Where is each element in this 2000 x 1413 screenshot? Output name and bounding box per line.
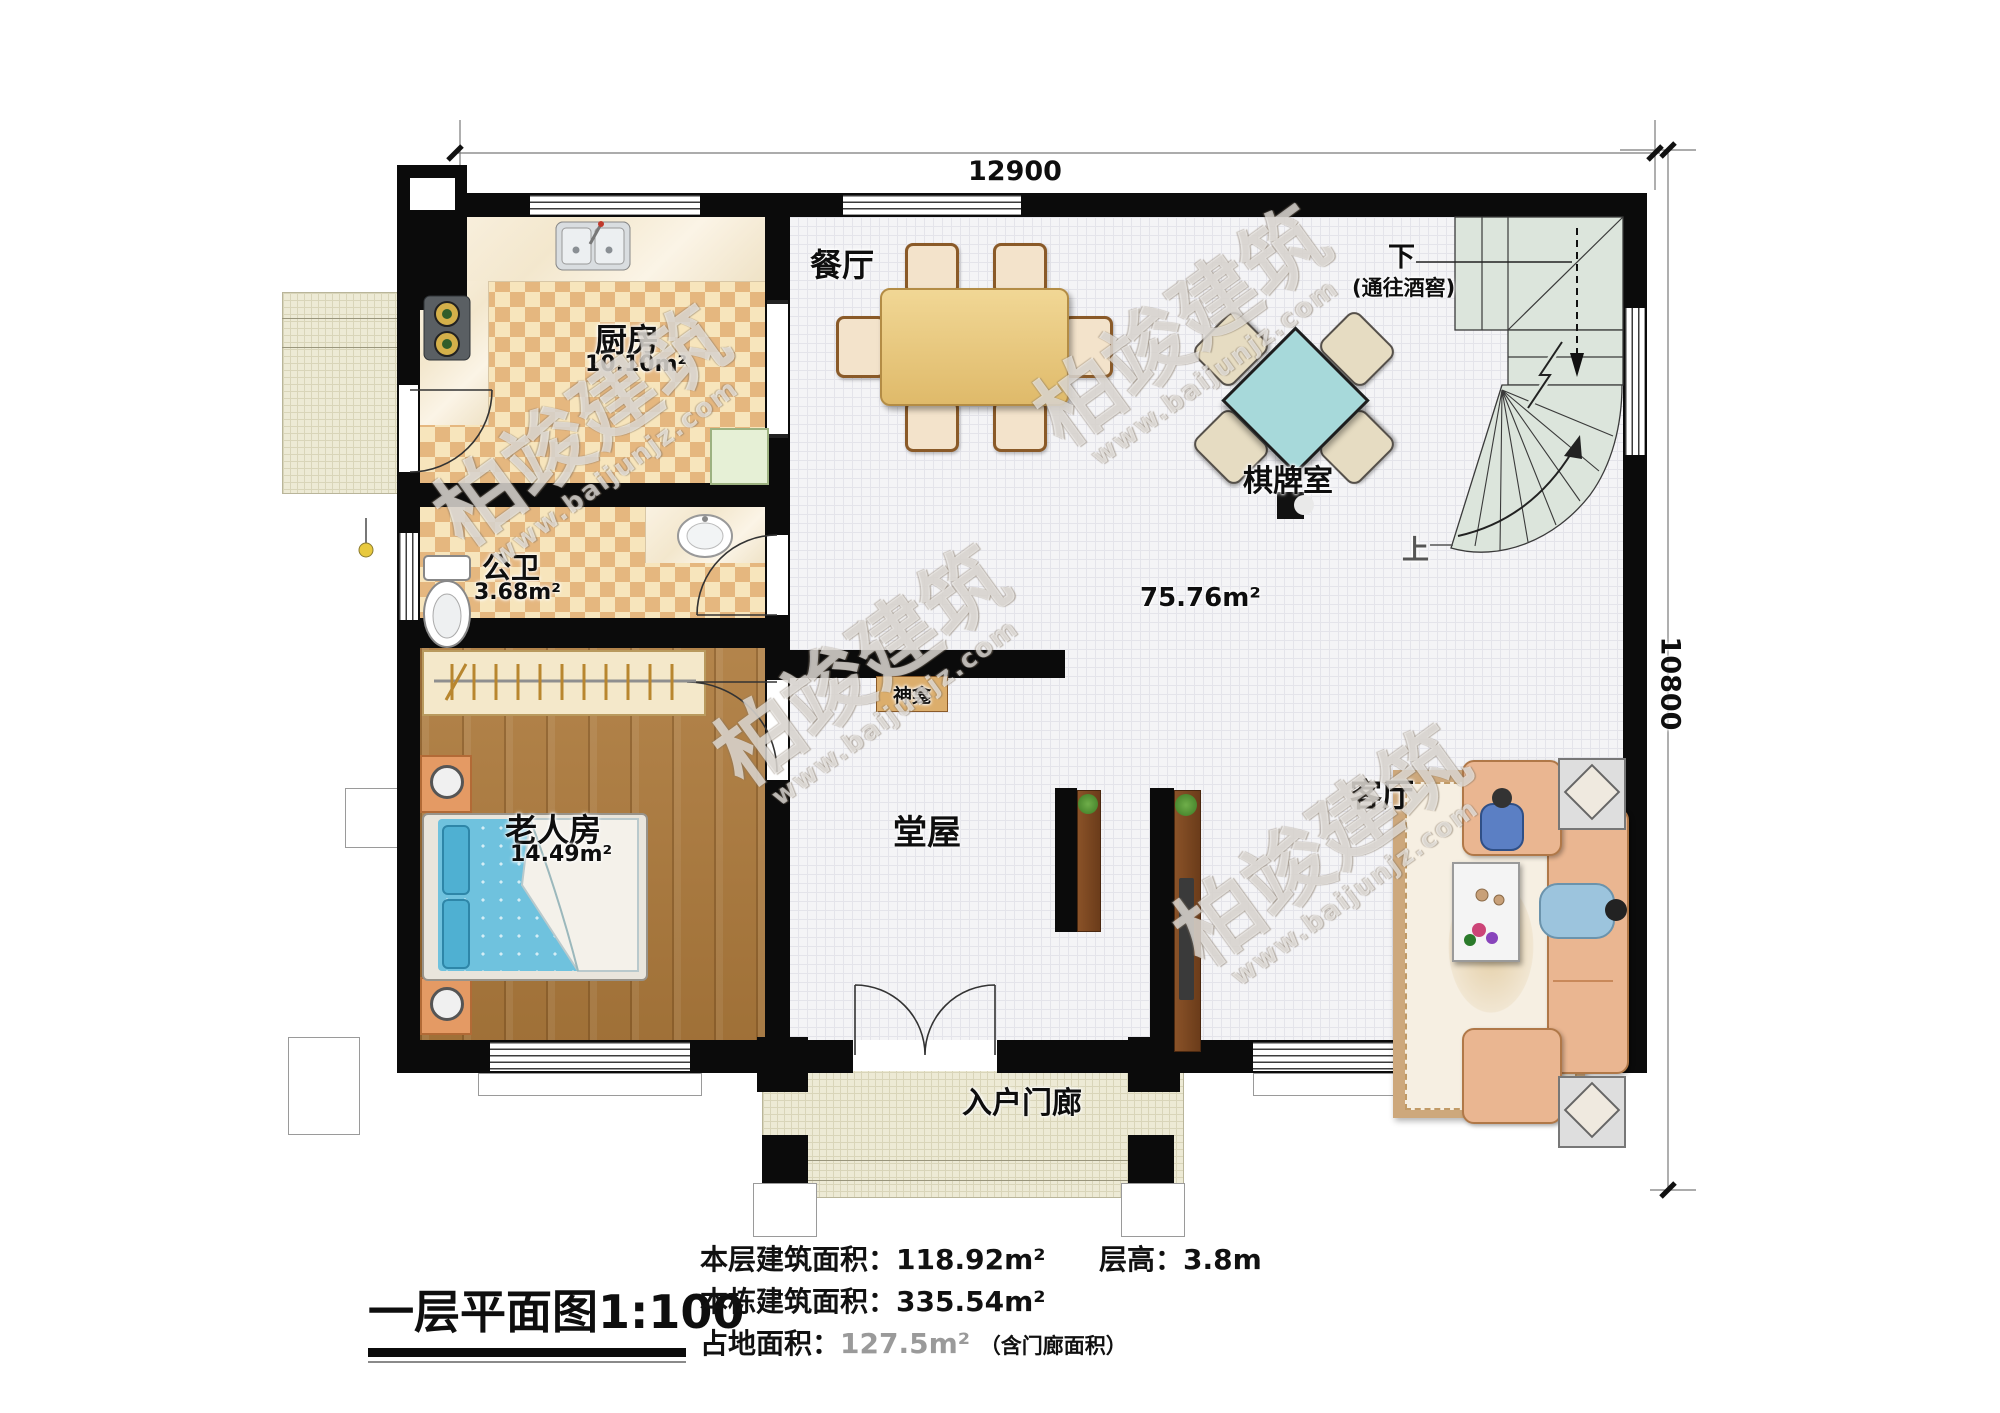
fridge: [710, 428, 769, 485]
dim-top-value: 12900: [968, 156, 1062, 187]
dining-chair-left: [836, 316, 886, 378]
porch-column-top-left: [757, 1037, 808, 1092]
corner-flue: [410, 178, 455, 210]
wall-shrine: [765, 650, 1065, 678]
room-label-porch: 入户门廊: [962, 1078, 1082, 1122]
room-label-living: 客厅: [1350, 770, 1414, 816]
sill-elder-window: [478, 1073, 702, 1096]
stair-down-label: 下: [1388, 235, 1415, 274]
wall-stub-cabinet: [1055, 788, 1077, 932]
armchair-top: [1462, 760, 1562, 856]
stats-area-label: 本层建筑面积：: [700, 1243, 896, 1276]
nightstand-lamp-top: [430, 765, 464, 799]
wall-hall-right: [1150, 788, 1174, 1040]
kitchen-door-opening: [767, 300, 788, 438]
tv-screen: [1179, 878, 1194, 1000]
entry-door-opening: [853, 1042, 997, 1071]
stats-total-value: 335.54m²: [896, 1285, 1046, 1318]
wall-bath-bottom: [397, 618, 765, 648]
room-label-hall: 堂屋: [893, 805, 961, 854]
dining-table: [880, 288, 1069, 406]
stats-land-note: （含门廊面积）: [980, 1334, 1127, 1358]
title-underline-thin: [368, 1361, 686, 1363]
stats-land-label: 占地面积：: [700, 1327, 840, 1360]
dining-chair-bottom-1: [905, 400, 959, 452]
dining-chair-right: [1063, 316, 1113, 378]
plan-title: 一层平面图: [368, 1285, 598, 1339]
bath-lamp: [359, 518, 373, 557]
room-area-elder: 14.49m²: [510, 842, 612, 867]
porch-column-top-right: [1128, 1037, 1180, 1092]
terrace-door-opening: [399, 385, 418, 472]
porch-column-base-right: [1121, 1183, 1185, 1237]
bath-door-opening: [767, 535, 788, 615]
porch-column-base-left: [753, 1183, 817, 1237]
porch-step-lines: [808, 1160, 1128, 1181]
room-area-kitchen: 10.10m²: [585, 352, 687, 377]
elder-window: [490, 1042, 690, 1071]
bed-pillow-1: [442, 825, 470, 895]
dining-chair-bottom-2: [993, 400, 1047, 452]
terrace-step-lines: [282, 318, 397, 348]
porch-column-bottom-left: [762, 1135, 808, 1183]
room-area-bath: 3.68m²: [474, 580, 561, 605]
hall-cabinet-plant: [1078, 794, 1098, 814]
floor-plan-canvas: 神龛: [0, 0, 2000, 1413]
stats-line-3: 占地面积：127.5m² （含门廊面积）: [700, 1322, 1127, 1362]
wall-kitchen-bottom: [397, 483, 765, 507]
stats-line-1: 本层建筑面积：118.92m² 层高：3.8m: [700, 1238, 1262, 1278]
open-area-value: 75.76m²: [1140, 583, 1261, 613]
sofa-cushion-lines: [1553, 814, 1613, 1064]
bath-sink-counter: [645, 507, 766, 563]
sill-bottom-left: [288, 1037, 360, 1135]
nightstand-lamp-bottom: [430, 987, 464, 1021]
dining-window: [843, 195, 1021, 215]
stair-up-label: 上: [1402, 528, 1429, 567]
coffee-table: [1452, 862, 1520, 962]
stair-window: [1625, 308, 1645, 455]
stats-height-value: 3.8m: [1183, 1243, 1262, 1276]
stats-land-value: 127.5m²: [840, 1327, 970, 1360]
wardrobe: [422, 650, 706, 716]
title-block: 一层平面图1:100: [368, 1276, 744, 1363]
stats-total-label: 本栋建筑面积：: [700, 1285, 896, 1318]
bed-pillow-2: [442, 899, 470, 969]
tv-plant: [1175, 794, 1197, 816]
sill-left-mid: [345, 788, 402, 848]
room-label-chess: 棋牌室: [1243, 456, 1333, 500]
stair-down-note: (通往酒窖): [1352, 272, 1455, 302]
dim-right-value: 10800: [1655, 624, 1686, 744]
title-underline-thick: [368, 1348, 686, 1357]
kitchen-counter-top: [420, 217, 765, 282]
elder-door-opening: [767, 680, 788, 780]
bath-window: [399, 533, 418, 620]
stats-area-value: 118.92m²: [896, 1243, 1046, 1276]
porch-column-bottom-right: [1128, 1135, 1174, 1183]
armchair-bottom: [1462, 1028, 1562, 1124]
shrine-label: 神龛: [893, 681, 931, 708]
shrine-box: 神龛: [876, 676, 948, 712]
stats-line-2: 本栋建筑面积：335.54m²: [700, 1280, 1046, 1320]
stats-height-label: 层高：: [1099, 1243, 1183, 1276]
room-label-dining: 餐厅: [810, 240, 874, 286]
kitchen-window: [530, 195, 700, 215]
